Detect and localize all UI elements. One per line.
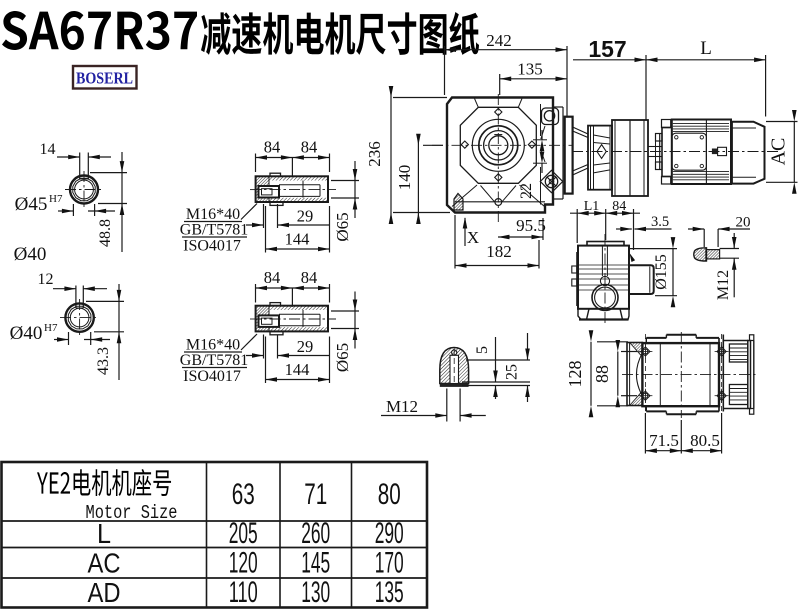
svg-text:M16*40: M16*40 <box>186 206 240 223</box>
svg-text:X: X <box>467 228 479 247</box>
svg-text:130: 130 <box>301 576 330 609</box>
svg-text:242: 242 <box>486 31 512 50</box>
svg-text:63: 63 <box>232 478 255 511</box>
svg-text:5: 5 <box>474 346 491 354</box>
svg-text:144: 144 <box>285 360 310 379</box>
svg-text:88: 88 <box>592 365 612 383</box>
svg-text:71: 71 <box>304 478 327 511</box>
svg-text:L: L <box>700 38 712 59</box>
svg-text:L: L <box>97 518 111 549</box>
svg-text:AC: AC <box>88 548 121 579</box>
svg-text:182: 182 <box>486 242 512 261</box>
svg-text:84: 84 <box>301 138 318 157</box>
svg-text:BOSERL: BOSERL <box>76 69 133 88</box>
svg-text:GB/T5781: GB/T5781 <box>180 352 248 369</box>
svg-text:25: 25 <box>504 364 521 380</box>
svg-text:Ø65: Ø65 <box>333 212 352 241</box>
svg-text:M16*40: M16*40 <box>186 337 240 354</box>
svg-text:84: 84 <box>301 268 318 287</box>
svg-text:236: 236 <box>365 141 384 167</box>
svg-text:144: 144 <box>285 230 310 249</box>
svg-text:GB/T5781: GB/T5781 <box>180 222 248 239</box>
svg-text:AD: AD <box>88 577 121 608</box>
svg-text:128: 128 <box>565 361 585 388</box>
svg-text:120: 120 <box>229 547 258 580</box>
svg-text:170: 170 <box>375 547 404 580</box>
svg-text:12: 12 <box>38 271 54 288</box>
svg-text:Ø40: Ø40 <box>14 244 47 265</box>
svg-text:H7: H7 <box>44 322 58 334</box>
svg-text:20: 20 <box>736 215 751 231</box>
svg-text:29: 29 <box>297 337 314 356</box>
svg-text:H7: H7 <box>49 193 63 205</box>
svg-text:80: 80 <box>378 478 401 511</box>
svg-text:140: 140 <box>395 165 414 191</box>
svg-text:260: 260 <box>301 517 330 550</box>
svg-text:80.5: 80.5 <box>690 431 720 450</box>
svg-text:84: 84 <box>612 199 626 214</box>
svg-text:22: 22 <box>518 183 535 199</box>
svg-text:145: 145 <box>301 547 330 580</box>
svg-text:ISO4017: ISO4017 <box>183 368 241 385</box>
svg-text:Ø155: Ø155 <box>653 254 670 290</box>
svg-text:135: 135 <box>517 60 543 79</box>
svg-text:110: 110 <box>229 576 258 609</box>
svg-text:M12: M12 <box>386 397 418 416</box>
svg-text:95.5: 95.5 <box>516 216 546 235</box>
svg-text:3.5: 3.5 <box>651 214 669 230</box>
svg-text:135: 135 <box>375 576 404 609</box>
svg-text:290: 290 <box>375 517 404 550</box>
svg-text:84: 84 <box>264 138 281 157</box>
svg-text:L1: L1 <box>584 199 600 214</box>
svg-text:205: 205 <box>229 517 258 550</box>
svg-text:43.3: 43.3 <box>95 347 112 375</box>
svg-text:M12: M12 <box>715 270 732 300</box>
svg-text:Ø45: Ø45 <box>15 194 48 215</box>
svg-text:48.8: 48.8 <box>97 219 114 247</box>
svg-text:Ø40: Ø40 <box>10 323 43 344</box>
svg-text:84: 84 <box>264 268 281 287</box>
svg-text:14: 14 <box>40 141 56 158</box>
svg-text:157: 157 <box>588 36 626 62</box>
svg-text:29: 29 <box>297 207 314 226</box>
svg-text:ISO4017: ISO4017 <box>183 238 241 255</box>
svg-text:71.5: 71.5 <box>649 431 679 450</box>
svg-text:Ø65: Ø65 <box>333 343 352 372</box>
svg-text:AC: AC <box>768 138 790 166</box>
